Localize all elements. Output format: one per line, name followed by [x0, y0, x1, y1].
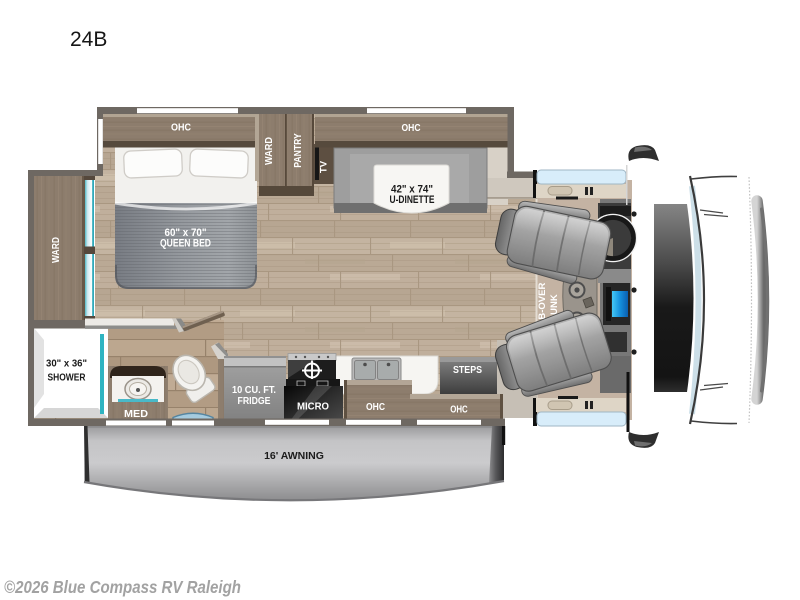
svg-text:PANTRY: PANTRY — [292, 133, 304, 168]
svg-text:U-DINETTE: U-DINETTE — [390, 194, 435, 206]
svg-text:24B: 24B — [70, 28, 107, 51]
svg-text:10 CU. FT.: 10 CU. FT. — [232, 385, 276, 396]
svg-text:STEPS: STEPS — [453, 365, 482, 376]
svg-text:WARD: WARD — [50, 237, 62, 263]
svg-text:MICRO: MICRO — [297, 401, 329, 413]
svg-text:OHC: OHC — [366, 402, 385, 413]
svg-text:16' AWNING: 16' AWNING — [264, 450, 324, 462]
svg-text:SHOWER: SHOWER — [48, 373, 86, 384]
svg-text:©2026 Blue Compass RV Raleigh: ©2026 Blue Compass RV Raleigh — [4, 577, 241, 597]
svg-text:OHC: OHC — [402, 122, 421, 134]
svg-text:OHC: OHC — [450, 405, 468, 416]
svg-text:MED: MED — [124, 409, 148, 420]
svg-text:TV: TV — [319, 160, 330, 173]
svg-text:FRIDGE: FRIDGE — [238, 396, 271, 407]
svg-text:WARD: WARD — [263, 137, 275, 165]
svg-text:30" x 36": 30" x 36" — [46, 359, 87, 370]
svg-text:OHC: OHC — [171, 122, 191, 134]
svg-text:QUEEN BED: QUEEN BED — [160, 238, 211, 250]
